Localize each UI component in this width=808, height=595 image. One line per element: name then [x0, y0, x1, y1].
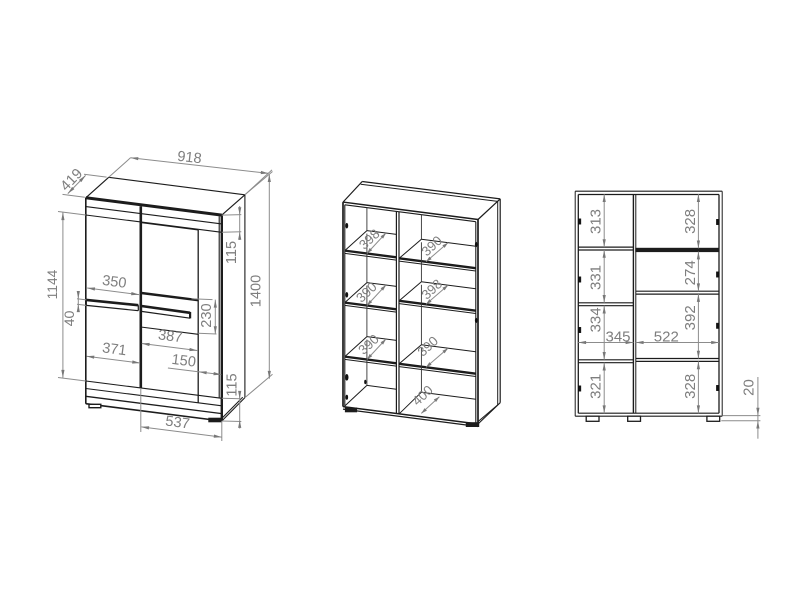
svg-text:20: 20 [741, 379, 758, 396]
svg-text:345: 345 [605, 329, 630, 346]
svg-text:230: 230 [199, 303, 215, 327]
svg-text:40: 40 [62, 311, 78, 327]
svg-text:115: 115 [225, 373, 241, 396]
svg-text:115: 115 [224, 241, 240, 264]
svg-text:334: 334 [587, 307, 604, 332]
svg-text:522: 522 [654, 329, 679, 346]
svg-text:537: 537 [164, 414, 190, 433]
svg-text:331: 331 [587, 265, 604, 290]
svg-text:371: 371 [101, 340, 127, 359]
svg-text:328: 328 [682, 374, 699, 399]
svg-text:392: 392 [682, 305, 699, 330]
svg-text:313: 313 [587, 209, 604, 234]
svg-text:321: 321 [587, 374, 604, 399]
svg-text:150: 150 [171, 352, 197, 371]
svg-text:1144: 1144 [45, 269, 60, 299]
svg-text:328: 328 [682, 209, 699, 234]
svg-text:274: 274 [682, 260, 699, 285]
svg-text:350: 350 [101, 273, 127, 292]
svg-text:918: 918 [176, 149, 202, 168]
svg-text:387: 387 [157, 327, 183, 346]
svg-text:1400: 1400 [249, 275, 265, 307]
